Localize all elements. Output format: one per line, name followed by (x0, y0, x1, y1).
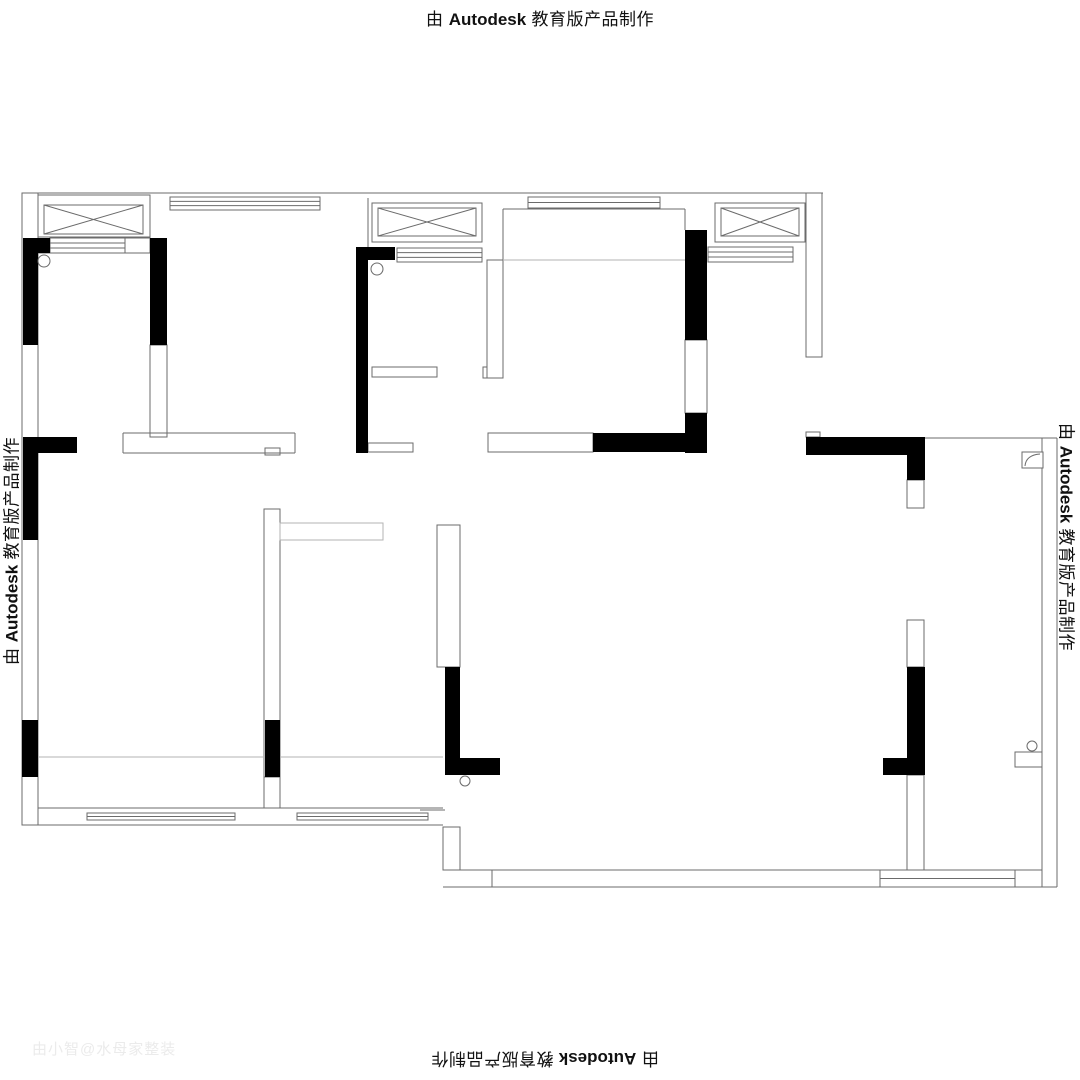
autodesk-brand-text: Autodesk (559, 1049, 636, 1068)
wall-segment (356, 247, 395, 260)
floor-plan-page: 由 Autodesk 教育版产品制作 由 Autodesk 教育版产品制作 由 … (0, 0, 1080, 1080)
wall-outline (150, 345, 167, 437)
stamp-post: 教育版产品制作 (531, 10, 654, 29)
wall-segment (445, 667, 460, 775)
watermark-text: 由小智@水母家整装 (32, 1038, 176, 1059)
window-sill (170, 197, 320, 210)
wall-segment (883, 758, 907, 775)
wall-outline (264, 777, 280, 808)
wall-outline (907, 620, 924, 667)
wall-segment (23, 437, 38, 540)
stamp-pre: 由 (3, 647, 22, 665)
marker-circle (1027, 741, 1037, 751)
stamp-post: 教育版产品制作 (431, 1049, 554, 1068)
wall-segment (593, 433, 685, 452)
wall-outline (685, 340, 707, 413)
window-sill (50, 238, 125, 253)
window-sill (708, 247, 793, 262)
wall-segment (685, 413, 707, 453)
plot-stamp-right: 由 Autodesk 教育版产品制作 (1056, 423, 1080, 651)
wall-outline (437, 525, 460, 667)
wall-segment (356, 247, 368, 453)
wall-segment (907, 455, 925, 480)
stamp-pre: 由 (641, 1049, 659, 1068)
wall-outline (125, 238, 150, 253)
stamp-post: 教育版产品制作 (3, 437, 22, 560)
wall-segment (685, 230, 707, 340)
wall-segment (806, 437, 925, 455)
plot-stamp-top: 由 Autodesk 教育版产品制作 (426, 5, 654, 30)
autodesk-brand-text: Autodesk (449, 10, 526, 29)
wall-outline (265, 448, 280, 455)
autodesk-brand-text: Autodesk (3, 565, 22, 642)
window-sill (397, 248, 482, 262)
wall-outline (488, 433, 593, 452)
wall-segment (150, 238, 167, 345)
wall-outline (907, 775, 924, 870)
wall-segment (907, 667, 925, 775)
stamp-pre: 由 (426, 10, 444, 29)
plot-stamp-bottom: 由 Autodesk 教育版产品制作 (431, 1048, 659, 1073)
autodesk-brand-text: Autodesk (1057, 446, 1076, 523)
wall-outline (1015, 752, 1042, 767)
plot-stamp-left: 由 Autodesk 教育版产品制作 (0, 437, 23, 665)
wall-segment (22, 720, 38, 777)
stamp-pre: 由 (1057, 423, 1076, 441)
wall-outline (907, 480, 924, 508)
stamp-post: 教育版产品制作 (1057, 528, 1076, 651)
wall-segment (460, 758, 500, 775)
closet-outline (280, 523, 383, 540)
wall-outline (806, 432, 820, 437)
marker-circle (371, 263, 383, 275)
wall-outline (372, 367, 437, 377)
wall-segment (265, 720, 280, 777)
marker-circle (38, 255, 50, 267)
wall-outline (368, 443, 413, 452)
marker-circle (460, 776, 470, 786)
wall-outline (487, 260, 503, 378)
wall-segment (23, 238, 38, 345)
wall-outline (806, 193, 822, 357)
wall-outline (443, 827, 460, 870)
floor-plan-canvas (0, 0, 1080, 1080)
